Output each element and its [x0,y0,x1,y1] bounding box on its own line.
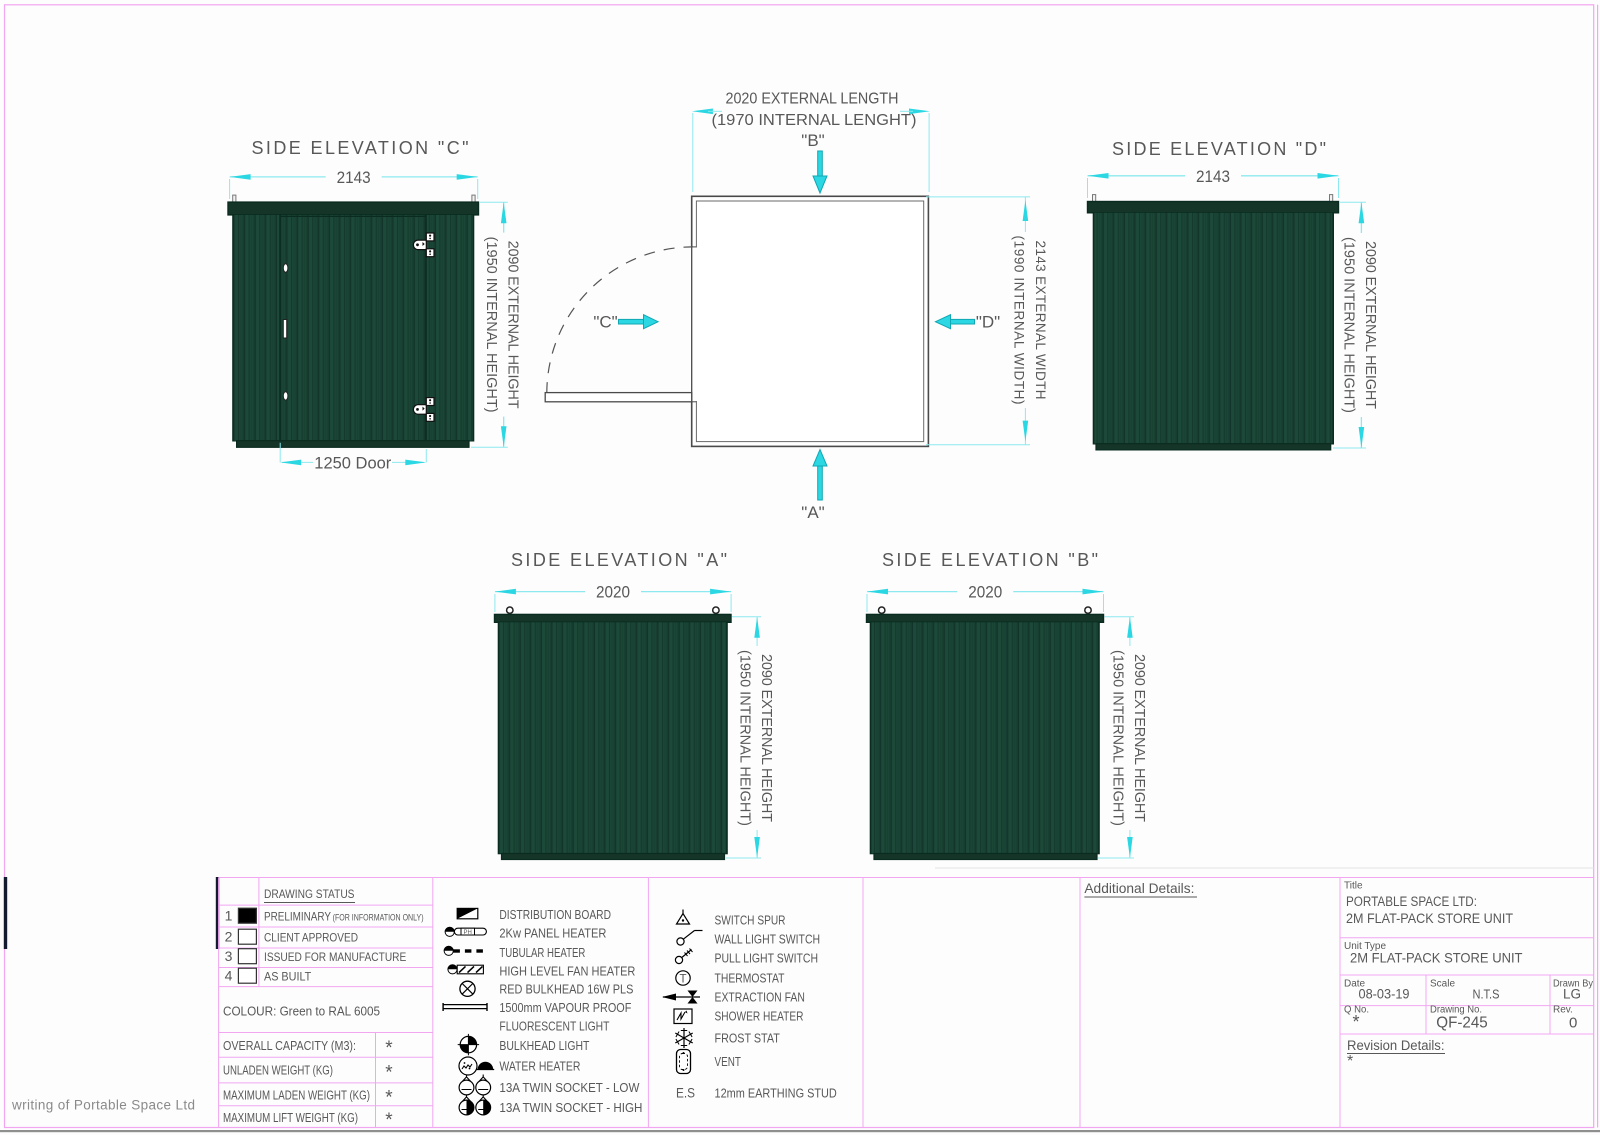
svg-text:N.T.S: N.T.S [1473,987,1500,1002]
svg-text:2Kw PANEL HEATER: 2Kw PANEL HEATER [499,925,606,940]
svg-text:OVERALL CAPACITY (M3):: OVERALL CAPACITY (M3): [223,1039,356,1053]
svg-text:2M FLAT-PACK STORE UNIT: 2M FLAT-PACK STORE UNIT [1350,950,1523,966]
svg-text:FLUORESCENT LIGHT: FLUORESCENT LIGHT [499,1018,609,1033]
svg-text:2090 EXTERNAL HEIGHT: 2090 EXTERNAL HEIGHT [1362,241,1378,409]
svg-text:RED BULKHEAD 16W PLS: RED BULKHEAD 16W PLS [499,982,633,997]
svg-text:*: * [385,1088,393,1109]
svg-text:(1950 INTERNAL HEIGHT): (1950 INTERNAL HEIGHT) [737,650,753,826]
svg-text:08-03-19: 08-03-19 [1359,987,1410,1002]
svg-text:DISTRIBUTION BOARD: DISTRIBUTION BOARD [499,907,611,922]
svg-text:1250 Door: 1250 Door [314,453,391,472]
svg-text:*: * [1347,1053,1353,1070]
svg-text:UNLADEN WEIGHT (KG): UNLADEN WEIGHT (KG) [223,1064,333,1078]
svg-text:"A": "A" [801,503,824,522]
svg-text:FROST STAT: FROST STAT [715,1030,780,1045]
svg-text:ISSUED FOR MANUFACTURE: ISSUED FOR MANUFACTURE [264,950,406,964]
svg-text:SIDE ELEVATION "B": SIDE ELEVATION "B" [882,550,1098,570]
svg-text:(1950 INTERNAL HEIGHT): (1950 INTERNAL HEIGHT) [1341,237,1357,413]
svg-text:DRAWING STATUS: DRAWING STATUS [264,889,355,901]
svg-text:2143: 2143 [337,168,371,187]
svg-text:PULL LIGHT SWITCH: PULL LIGHT SWITCH [715,950,819,965]
svg-text:SWITCH SPUR: SWITCH SPUR [715,912,786,927]
svg-text:"D": "D" [976,313,1000,332]
svg-text:2: 2 [225,929,233,945]
svg-text:CLIENT APPROVED: CLIENT APPROVED [264,931,358,945]
svg-text:PH: PH [464,930,472,936]
svg-text:SHOWER HEATER: SHOWER HEATER [715,1008,804,1023]
svg-text:*: * [385,1038,393,1059]
svg-text:1: 1 [225,908,233,924]
svg-text:(FOR INFORMATION ONLY): (FOR INFORMATION ONLY) [333,913,424,923]
svg-text:THERMOSTAT: THERMOSTAT [715,970,785,985]
svg-text:PRELIMINARY: PRELIMINARY [264,910,331,924]
svg-text:T: T [679,974,686,986]
svg-text:(1970 INTERNAL LENGHT): (1970 INTERNAL LENGHT) [712,112,917,129]
svg-text:EXTRACTION FAN: EXTRACTION FAN [715,989,805,1004]
svg-text:3: 3 [225,948,233,964]
svg-text:HIGH LEVEL FAN HEATER: HIGH LEVEL FAN HEATER [499,963,635,978]
svg-text:2M FLAT-PACK STORE UNIT: 2M FLAT-PACK STORE UNIT [1346,910,1513,926]
svg-text:QF-245: QF-245 [1436,1015,1488,1032]
svg-text:13A TWIN SOCKET - LOW: 13A TWIN SOCKET - LOW [499,1080,640,1095]
svg-text:BULKHEAD LIGHT: BULKHEAD LIGHT [499,1038,589,1053]
svg-text:(1990 INTERNAL WIDTH): (1990 INTERNAL WIDTH) [1012,236,1027,405]
svg-text:13A TWIN SOCKET - HIGH: 13A TWIN SOCKET - HIGH [499,1100,642,1115]
svg-text:Scale: Scale [1430,979,1455,990]
svg-text:0: 0 [1569,1015,1577,1032]
svg-text:E.S: E.S [676,1086,695,1101]
svg-text:2090 EXTERNAL HEIGHT: 2090 EXTERNAL HEIGHT [758,654,774,822]
svg-text:Revision Details:: Revision Details: [1347,1038,1445,1053]
svg-text:WALL LIGHT SWITCH: WALL LIGHT SWITCH [715,931,821,946]
svg-text:MAXIMUM LADEN WEIGHT (KG): MAXIMUM LADEN WEIGHT (KG) [223,1089,370,1103]
svg-text:2090 EXTERNAL HEIGHT: 2090 EXTERNAL HEIGHT [1131,654,1147,822]
svg-text:2143 EXTERNAL WIDTH: 2143 EXTERNAL WIDTH [1033,241,1048,400]
svg-text:MAXIMUM LIFT WEIGHT (KG): MAXIMUM LIFT WEIGHT (KG) [223,1111,358,1125]
svg-text:COLOUR: Green to RAL 6005: COLOUR: Green to RAL 6005 [223,1005,380,1019]
svg-text:*: * [385,1063,393,1084]
svg-text:2020 EXTERNAL LENGTH: 2020 EXTERNAL LENGTH [726,91,899,108]
svg-text:*: * [1352,1012,1359,1032]
svg-text:SIDE ELEVATION "A": SIDE ELEVATION "A" [511,550,727,570]
svg-text:"C": "C" [593,313,617,332]
svg-text:PORTABLE SPACE LTD:: PORTABLE SPACE LTD: [1346,894,1477,909]
svg-text:(1950 INTERNAL HEIGHT): (1950 INTERNAL HEIGHT) [483,237,499,413]
svg-text:"B": "B" [801,131,824,150]
svg-text:TUBULAR HEATER: TUBULAR HEATER [499,945,585,960]
svg-text:2020: 2020 [968,583,1002,602]
svg-text:AS BUILT: AS BUILT [264,970,312,984]
svg-text:LG: LG [1563,987,1581,1002]
svg-text:4: 4 [225,968,233,984]
svg-text:Additional Details:: Additional Details: [1084,880,1194,896]
svg-text:Title: Title [1344,881,1363,892]
svg-text:VENT: VENT [715,1054,741,1069]
svg-text:2020: 2020 [596,583,630,602]
svg-text:2143: 2143 [1196,167,1230,186]
svg-text:1500mm VAPOUR PROOF: 1500mm VAPOUR PROOF [499,1000,631,1015]
svg-text:writing of Portable Space: writing of Portable Space Ltd [11,1098,195,1113]
svg-text:(1950 INTERNAL HEIGHT): (1950 INTERNAL HEIGHT) [1109,650,1125,826]
svg-text:*: * [385,1110,393,1131]
svg-text:12mm EARTHING STUD: 12mm EARTHING STUD [715,1086,837,1101]
svg-text:WATER HEATER: WATER HEATER [499,1059,580,1074]
svg-text:2090 EXTERNAL HEIGHT: 2090 EXTERNAL HEIGHT [505,241,521,409]
